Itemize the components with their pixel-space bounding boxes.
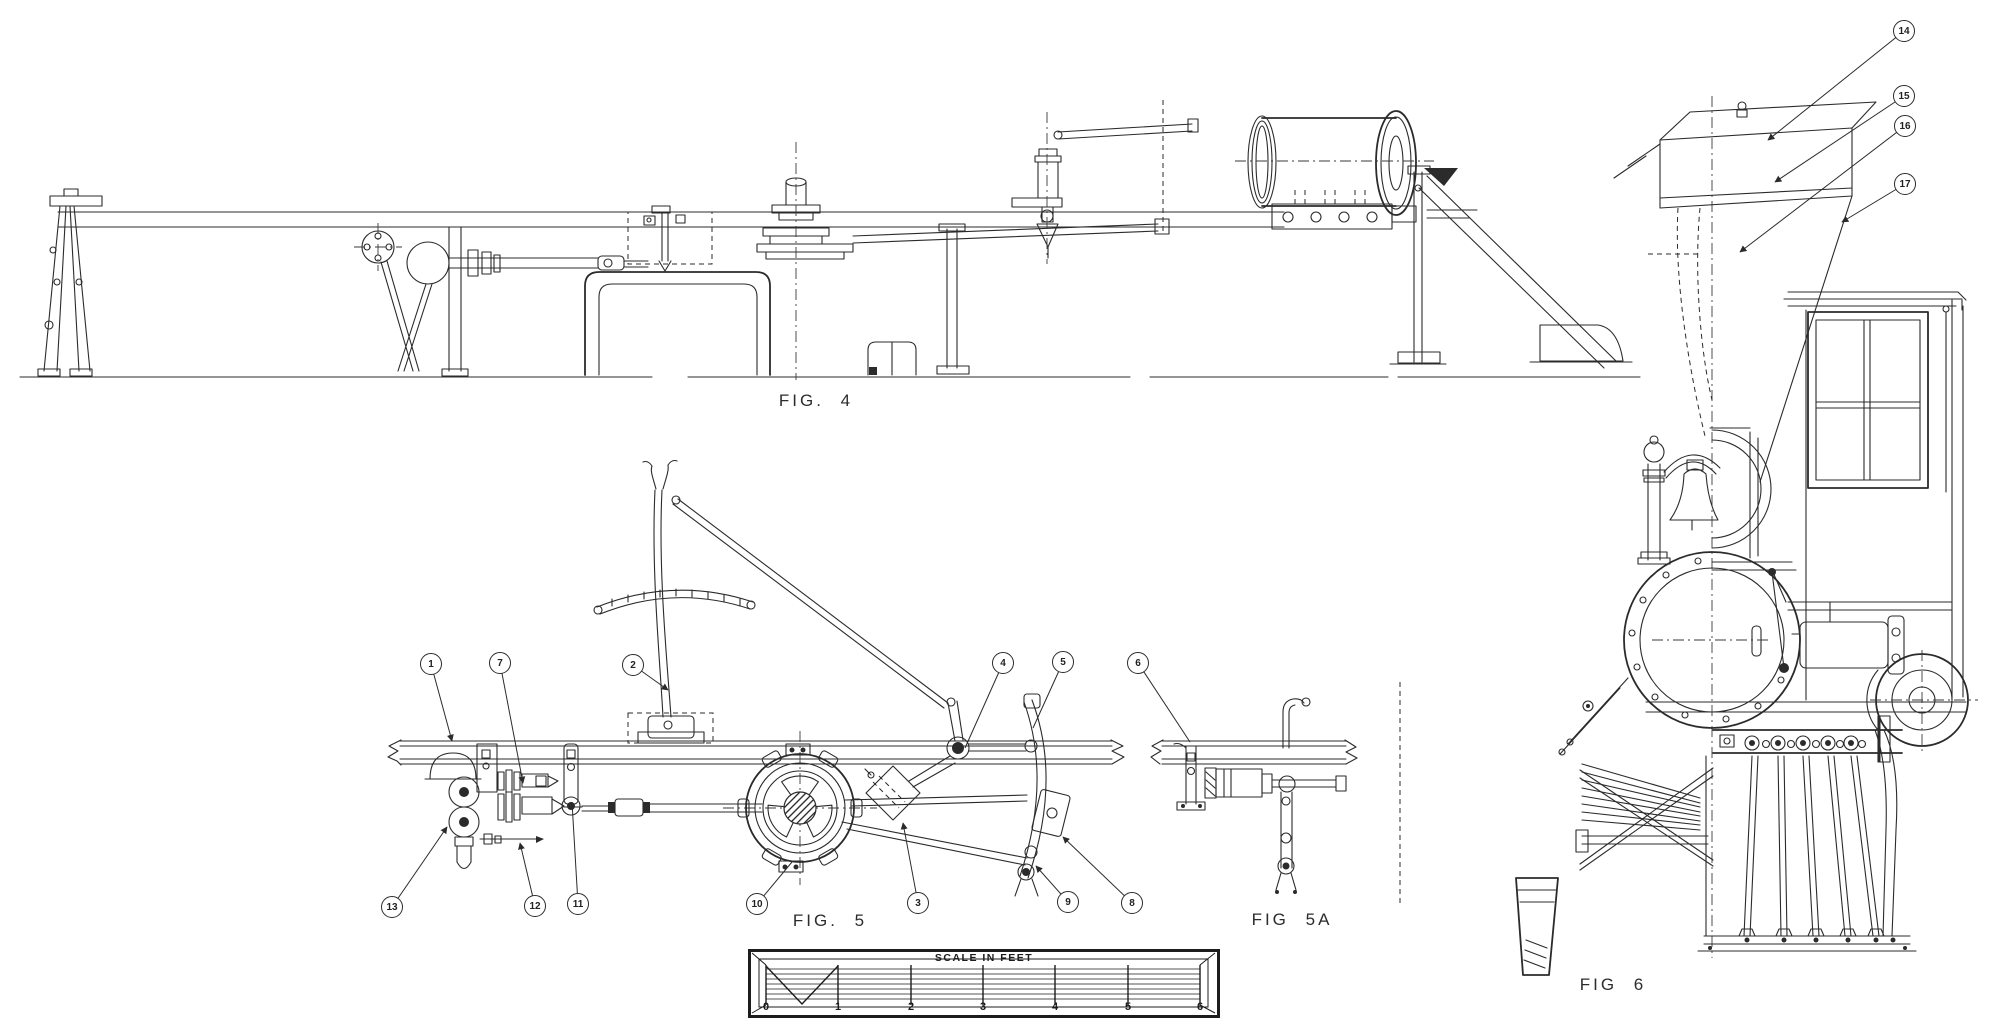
scale-bar: SCALE IN FEET 0 1 2 3 4 5 6 — [748, 949, 1220, 1018]
left-valve-device — [425, 744, 582, 869]
valve-device — [1012, 100, 1198, 264]
scale-tick-1: 1 — [831, 1001, 845, 1013]
callout-16: 16 — [1894, 115, 1916, 137]
fig4-drawing — [20, 100, 1640, 380]
main-beam — [58, 212, 1284, 227]
callout-leaders — [392, 31, 1905, 907]
reach-rod — [672, 496, 963, 741]
scale-tick-5: 5 — [1121, 1001, 1135, 1013]
pilot — [1646, 702, 1966, 951]
fig5-drawing — [388, 461, 1124, 897]
callout-4: 4 — [992, 652, 1014, 674]
callout-10: 10 — [746, 893, 768, 915]
callout-1: 1 — [420, 653, 442, 675]
support-post — [442, 227, 468, 376]
diamond-block — [865, 766, 920, 820]
callout-7: 7 — [489, 652, 511, 674]
fig6-drawing — [1516, 96, 1978, 975]
callout-11: 11 — [567, 893, 589, 915]
callout-6: 6 — [1127, 652, 1149, 674]
fig4-label: FIG. 4 — [779, 391, 853, 411]
callout-14: 14 — [1893, 20, 1915, 42]
air-pump — [1792, 602, 1904, 674]
drawing-sheet: FIG. 4 FIG. 5 FIG 5A FIG 6 1 2 3 4 5 6 7… — [0, 0, 2000, 1034]
scale-tick-3: 3 — [976, 1001, 990, 1013]
fig6-label: FIG 6 — [1580, 975, 1647, 995]
fig5-label: FIG. 5 — [793, 911, 867, 931]
fig5a-label: FIG 5A — [1252, 910, 1333, 930]
line-art — [0, 0, 2000, 1034]
callout-9: 9 — [1057, 891, 1079, 913]
callout-5: 5 — [1052, 651, 1074, 673]
a-frame-stand — [38, 189, 102, 376]
flanged-disc — [354, 223, 449, 371]
drum — [1235, 111, 1434, 229]
spring-and-braces — [1559, 678, 1713, 870]
bell-crank — [909, 737, 1026, 787]
callout-12: 12 — [524, 895, 546, 917]
callout-2: 2 — [622, 654, 644, 676]
callout-8: 8 — [1121, 892, 1143, 914]
callout-15: 15 — [1893, 85, 1915, 107]
fig5a-drawing — [1151, 682, 1400, 906]
scale-tick-6: 6 — [1193, 1001, 1207, 1013]
steam-dome — [1710, 428, 1796, 673]
front-wheel — [1867, 650, 1978, 752]
central-wheel — [582, 731, 1027, 885]
small-box-notch — [869, 367, 877, 375]
quadrant-arc — [594, 589, 755, 614]
bell — [1638, 436, 1720, 564]
tank — [585, 272, 770, 375]
flange-stack — [757, 142, 1169, 380]
diagonal-brace — [1390, 166, 1632, 368]
mid-post — [937, 224, 969, 374]
pump-bracket — [1174, 744, 1205, 811]
callout-13: 13 — [381, 896, 403, 918]
cylinder-detail — [1205, 768, 1346, 798]
scale-tick-0: 0 — [759, 1001, 773, 1013]
handle-link — [1275, 698, 1310, 894]
callout-3: 3 — [907, 892, 929, 914]
callout-17: 17 — [1894, 173, 1916, 195]
hose-stack — [1516, 878, 1558, 975]
scale-tick-4: 4 — [1048, 1001, 1062, 1013]
scale-bar-title: SCALE IN FEET — [751, 952, 1217, 964]
scale-tick-2: 2 — [904, 1001, 918, 1013]
cab — [1784, 292, 1966, 700]
